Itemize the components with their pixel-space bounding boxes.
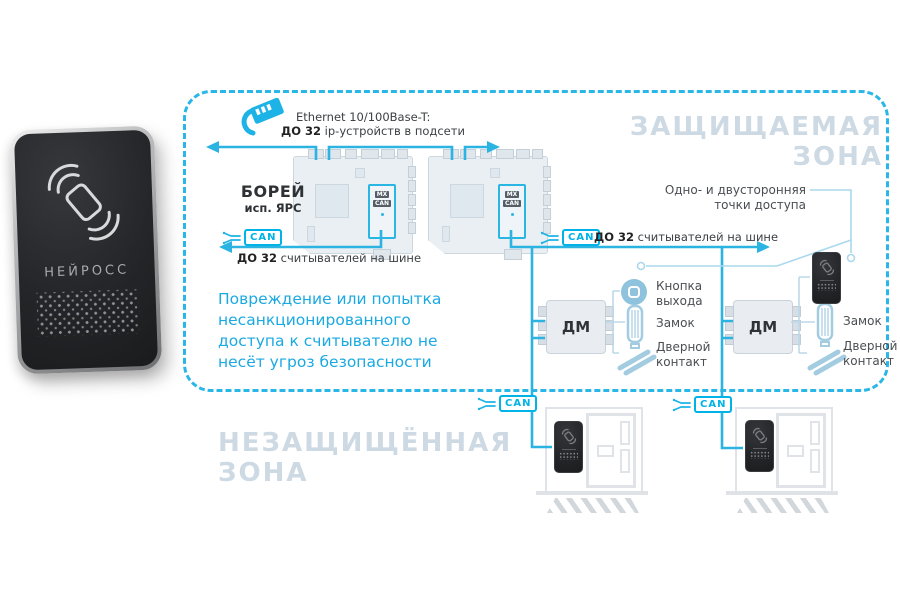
door-right-floor-hatch (737, 498, 829, 513)
door-contact-line1: Дверной (656, 340, 710, 355)
terminal-tab (792, 334, 801, 345)
terminal-tab (792, 306, 801, 317)
terminal-port (480, 149, 492, 159)
ethernet-title: Ethernet 10/100Base-T: (296, 110, 430, 124)
door-module-right-box: ДМ (733, 300, 793, 354)
door-handle (597, 445, 614, 457)
door-contact-line1: Дверной (843, 339, 897, 354)
reader-device-face: НЕЙРОСС (14, 130, 158, 371)
connector-pin (408, 208, 416, 220)
processor-chip (450, 184, 484, 218)
controller-board-1: MX CAN (293, 156, 411, 252)
can-label-4: CAN (672, 396, 732, 413)
terminal-port (532, 149, 543, 159)
terminal-port (397, 149, 408, 159)
connector-pin (543, 194, 551, 206)
connector-pin (408, 222, 416, 234)
reader-speaker-dots (559, 452, 578, 460)
lock-label-left: Замок (656, 316, 695, 331)
chip-label-bottom: CAN (373, 200, 391, 207)
terminal-port (516, 149, 530, 159)
security-warning-text: Повреждение или попытка несанкционирован… (218, 289, 441, 373)
ethernet-port (443, 149, 459, 159)
neyross-reader-device: НЕЙРОСС (10, 126, 162, 375)
terminal-port (381, 149, 395, 159)
connector-pin (408, 194, 416, 206)
reader-speaker-dots (750, 451, 769, 459)
warning-line: несанкционированного (218, 310, 441, 331)
door-frame-mark (810, 449, 820, 473)
controller-name: БОРЕЙ (240, 182, 306, 201)
diagram-canvas: ЗАЩИЩАЕМАЯ ЗОНА НЕЗАЩИЩЁННАЯ ЗОНА MX CAN (0, 0, 900, 600)
chip-label-top: MX (505, 191, 520, 198)
device-speaker-dots (36, 289, 139, 337)
can-label-1: CAN (222, 229, 282, 246)
can-wire-icon (672, 397, 692, 413)
wall-reader-protected (812, 252, 841, 304)
access-points-line2: точки доступа (650, 198, 806, 213)
door-module-left: ДМ (546, 300, 606, 354)
unprotected-zone-title-line1: НЕЗАЩИЩЁННАЯ (218, 428, 512, 458)
connector-pin (543, 208, 551, 220)
connector-pin (408, 180, 416, 192)
ethernet-port (308, 149, 324, 159)
exit-button-line2: выхода (656, 294, 703, 309)
can-wire-icon (540, 230, 560, 246)
terminal-port (496, 149, 514, 159)
chip-label-top: MX (375, 191, 390, 198)
terminal-port (361, 149, 379, 159)
access-points-label: Одно- и двусторонняя точки доступа (650, 183, 806, 213)
reader-detail-line (820, 280, 834, 281)
terminal-tab (538, 306, 547, 317)
reader-detail-line (562, 449, 576, 450)
connector-pin (543, 166, 551, 178)
terminal-port (345, 149, 357, 159)
door-contact-line2: контакт (843, 354, 897, 369)
terminal-tab (605, 306, 614, 317)
terminal-tab (605, 320, 614, 331)
can-capacity-rest: считывателей на шине (634, 230, 778, 244)
terminal-tab (792, 320, 801, 331)
rfid-glyph-icon (561, 428, 577, 445)
processor-chip (315, 184, 349, 218)
pcb-detail (442, 226, 450, 242)
can-wire-icon (222, 230, 242, 246)
ethernet-capacity-rest: ip-устройств в подсети (321, 124, 465, 138)
terminal-tab (725, 334, 734, 345)
unprotected-zone-title-line2: ЗОНА (218, 458, 512, 488)
can-label-3: CAN (477, 395, 537, 412)
pcb-detail (307, 226, 315, 242)
connector-pin (408, 166, 416, 178)
exit-button-label: Кнопка выхода (656, 279, 703, 309)
connector-pin (543, 180, 551, 192)
reader-speaker-dots (817, 283, 836, 291)
controller-variant: исп. ЯРС (240, 201, 306, 215)
can-label-text: CAN (694, 396, 732, 413)
ethernet-port (325, 149, 341, 159)
can-label-text: CAN (244, 229, 282, 246)
chip-label-bottom: CAN (503, 200, 521, 207)
controller-board-2: MX CAN (428, 156, 546, 252)
rfid-glyph-icon (819, 259, 835, 276)
can-interface-chip: MX CAN (498, 184, 526, 239)
door-left-panel (586, 413, 636, 488)
can-wire-icon (477, 396, 497, 412)
lock-label-right: Замок (843, 314, 882, 329)
can-capacity-rest: считывателей на шине (277, 251, 421, 265)
door-contact-label-left: Дверной контакт (656, 340, 710, 370)
terminal-tab (605, 334, 614, 345)
can-capacity-left: ДО 32 считывателей на шине (237, 251, 421, 265)
reader-detail-line (753, 448, 767, 449)
ethernet-capacity: ДО 32 ip-устройств в подсети (281, 124, 465, 138)
device-brand-label: НЕЙРОСС (44, 263, 129, 281)
can-interface-chip: MX CAN (368, 184, 396, 239)
can-label-2: CAN (540, 229, 600, 246)
rfid-glyph-icon (752, 427, 768, 444)
unprotected-zone-title: НЕЗАЩИЩЁННАЯ ЗОНА (218, 428, 512, 488)
door-module-left-box: ДМ (546, 300, 606, 354)
controller-label: БОРЕЙ исп. ЯРС (240, 182, 306, 215)
door-contact-label-right: Дверной контакт (843, 339, 897, 369)
pcb-detail (355, 168, 365, 178)
can-label-text: CAN (499, 395, 537, 412)
door-module-label: ДМ (562, 318, 590, 336)
terminal-tab (725, 320, 734, 331)
can-capacity-number: ДО 32 (237, 251, 277, 265)
can-capacity-number: ДО 32 (594, 230, 634, 244)
terminal-tab (538, 320, 547, 331)
ethernet-capacity-number: ДО 32 (281, 124, 321, 138)
door-right-threshold (726, 491, 838, 495)
door-module-label: ДМ (749, 318, 777, 336)
door-contact-line2: контакт (656, 355, 710, 370)
door-frame-mark (810, 421, 820, 445)
pcb-detail (490, 168, 500, 178)
door-left-floor-hatch (547, 498, 639, 513)
door-handle (787, 445, 804, 457)
door-left-threshold (536, 491, 648, 495)
chip-led (381, 213, 384, 216)
rfid-card-icon (41, 157, 128, 250)
door-right-panel (776, 413, 826, 488)
warning-line: доступа к считывателю не (218, 331, 441, 352)
access-points-line1: Одно- и двусторонняя (650, 183, 806, 198)
exit-button-line1: Кнопка (656, 279, 703, 294)
chip-led (511, 213, 514, 216)
warning-line: несёт угроз безопасности (218, 352, 441, 373)
wall-reader-door-left (554, 421, 583, 473)
terminal-tab (538, 334, 547, 345)
warning-line: Повреждение или попытка (218, 289, 441, 310)
ethernet-port (460, 149, 476, 159)
door-frame-mark (620, 421, 630, 445)
door-module-right: ДМ (733, 300, 793, 354)
can-port (504, 249, 522, 260)
door-frame-mark (620, 449, 630, 473)
can-capacity-right: ДО 32 считывателей на шине (594, 230, 778, 244)
terminal-tab (725, 306, 734, 317)
wall-reader-door-right (745, 420, 774, 472)
